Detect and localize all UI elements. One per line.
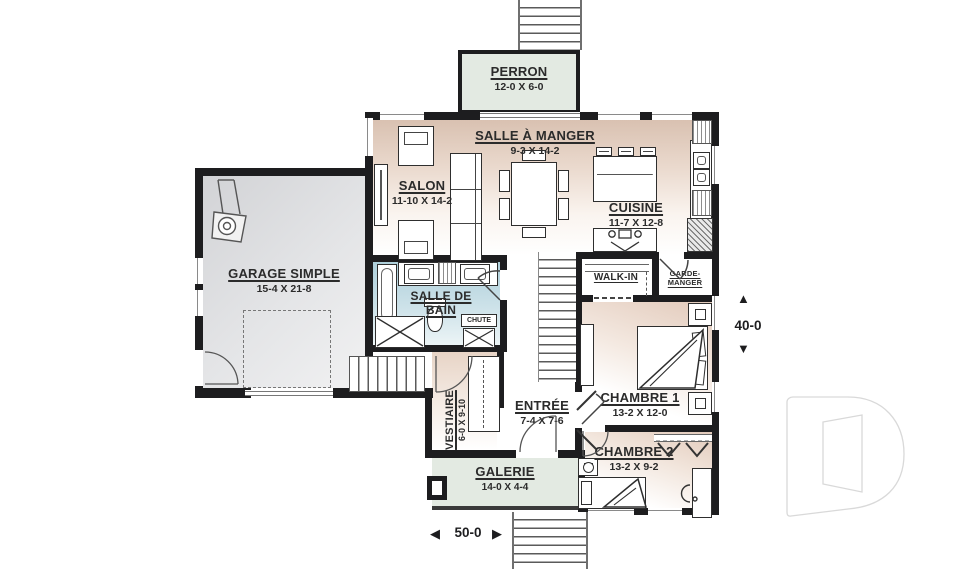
exterior-stairs-top xyxy=(518,0,582,50)
wall xyxy=(373,255,507,262)
bathroom-sink xyxy=(460,264,490,284)
entree-label: ENTRÉE 7-4 X 7-6 xyxy=(504,398,580,429)
pillow xyxy=(692,331,707,357)
dining-chair xyxy=(499,170,510,192)
wall xyxy=(500,255,507,270)
dining-chair xyxy=(558,198,569,220)
kitchen-sink xyxy=(693,152,710,169)
window xyxy=(648,508,682,515)
wall xyxy=(684,252,719,259)
dimension-width: 50-0 xyxy=(446,525,490,540)
wall xyxy=(633,295,719,302)
closet-shelf xyxy=(654,434,712,442)
window xyxy=(712,296,719,330)
dimension-arrow-left-icon: ◀ xyxy=(430,527,440,540)
dimension-arrow-up-icon: ▲ xyxy=(737,292,750,305)
bathtub xyxy=(377,264,397,324)
kitchen-cabinet xyxy=(692,120,712,144)
kitchen-sink xyxy=(693,169,710,186)
dining-chair xyxy=(499,198,510,220)
window xyxy=(598,112,640,120)
perron-label: PERRON 12-0 X 6-0 xyxy=(458,64,580,95)
bathroom-door-opening xyxy=(500,270,507,300)
dining-chair xyxy=(558,170,569,192)
wall xyxy=(575,295,593,302)
refrigerator xyxy=(687,218,713,252)
dresser xyxy=(580,324,594,386)
window xyxy=(195,290,203,316)
chambre2-label: CHAMBRE 2 13-2 X 9-2 xyxy=(580,444,688,475)
window xyxy=(712,146,719,184)
garage-side-door-opening xyxy=(195,350,203,386)
wall xyxy=(195,168,373,176)
wall xyxy=(652,252,659,302)
chambre1-label: CHAMBRE 1 13-2 X 12-0 xyxy=(583,390,697,421)
window xyxy=(712,382,719,412)
garage-door xyxy=(245,390,333,396)
walkin-label: WALK-IN xyxy=(585,271,647,284)
garage-parking-outline xyxy=(243,310,331,388)
kitchen-cabinet xyxy=(692,190,712,216)
galerie-label: GALERIE 14-0 X 4-4 xyxy=(454,464,556,494)
pillow xyxy=(581,481,592,505)
window xyxy=(195,258,203,284)
wall xyxy=(605,425,719,432)
dimension-arrow-right-icon: ▶ xyxy=(492,527,502,540)
desk xyxy=(692,468,712,518)
garde-manger-label: GARDE-MANGER xyxy=(660,270,710,287)
bathroom-sink xyxy=(404,264,434,284)
patio-door xyxy=(480,112,580,120)
window xyxy=(380,112,424,120)
kitchen-counter-stove xyxy=(593,228,657,252)
garage-entry-steps xyxy=(349,356,425,392)
laundry-chute xyxy=(463,328,495,348)
exterior-stairs-bottom xyxy=(512,512,588,569)
porch-post xyxy=(427,476,447,500)
vanity-cabinet xyxy=(438,262,456,284)
wall xyxy=(425,390,432,458)
armchair xyxy=(398,126,434,166)
closet-rod xyxy=(483,360,484,428)
floor-plan: PERRON 12-0 X 6-0 xyxy=(0,0,960,569)
garage-label: GARAGE SIMPLE 15-4 X 21-8 xyxy=(213,266,355,297)
kitchen-island xyxy=(593,156,657,202)
wall xyxy=(195,388,251,398)
salle-de-bain-label: SALLE DE BAIN xyxy=(398,290,484,318)
window xyxy=(588,508,634,515)
armchair xyxy=(398,220,434,260)
window xyxy=(365,118,373,156)
central-staircase xyxy=(538,252,576,382)
wall xyxy=(500,300,507,352)
laundry-unit xyxy=(375,316,425,348)
cuisine-label: CUISINE 11-7 X 12-8 xyxy=(600,200,672,231)
wall xyxy=(575,252,659,259)
drummond-logo-watermark xyxy=(782,392,918,520)
bar-stool xyxy=(640,147,656,156)
front-door-opening xyxy=(516,450,558,458)
vestiaire-label: VESTIAIRE 6-0 X 9-10 xyxy=(444,382,480,458)
salon-label: SALON 11-10 X 14-2 xyxy=(381,178,463,209)
dimension-arrow-down-icon: ▼ xyxy=(737,342,750,355)
dining-table xyxy=(511,162,557,226)
salle-a-manger-label: SALLE À MANGER 9-3 X 14-2 xyxy=(470,128,600,159)
dining-chair xyxy=(522,227,546,238)
window xyxy=(652,112,692,120)
bar-stool xyxy=(618,147,634,156)
nightstand xyxy=(688,303,712,326)
dimension-depth: 40-0 xyxy=(728,318,768,333)
